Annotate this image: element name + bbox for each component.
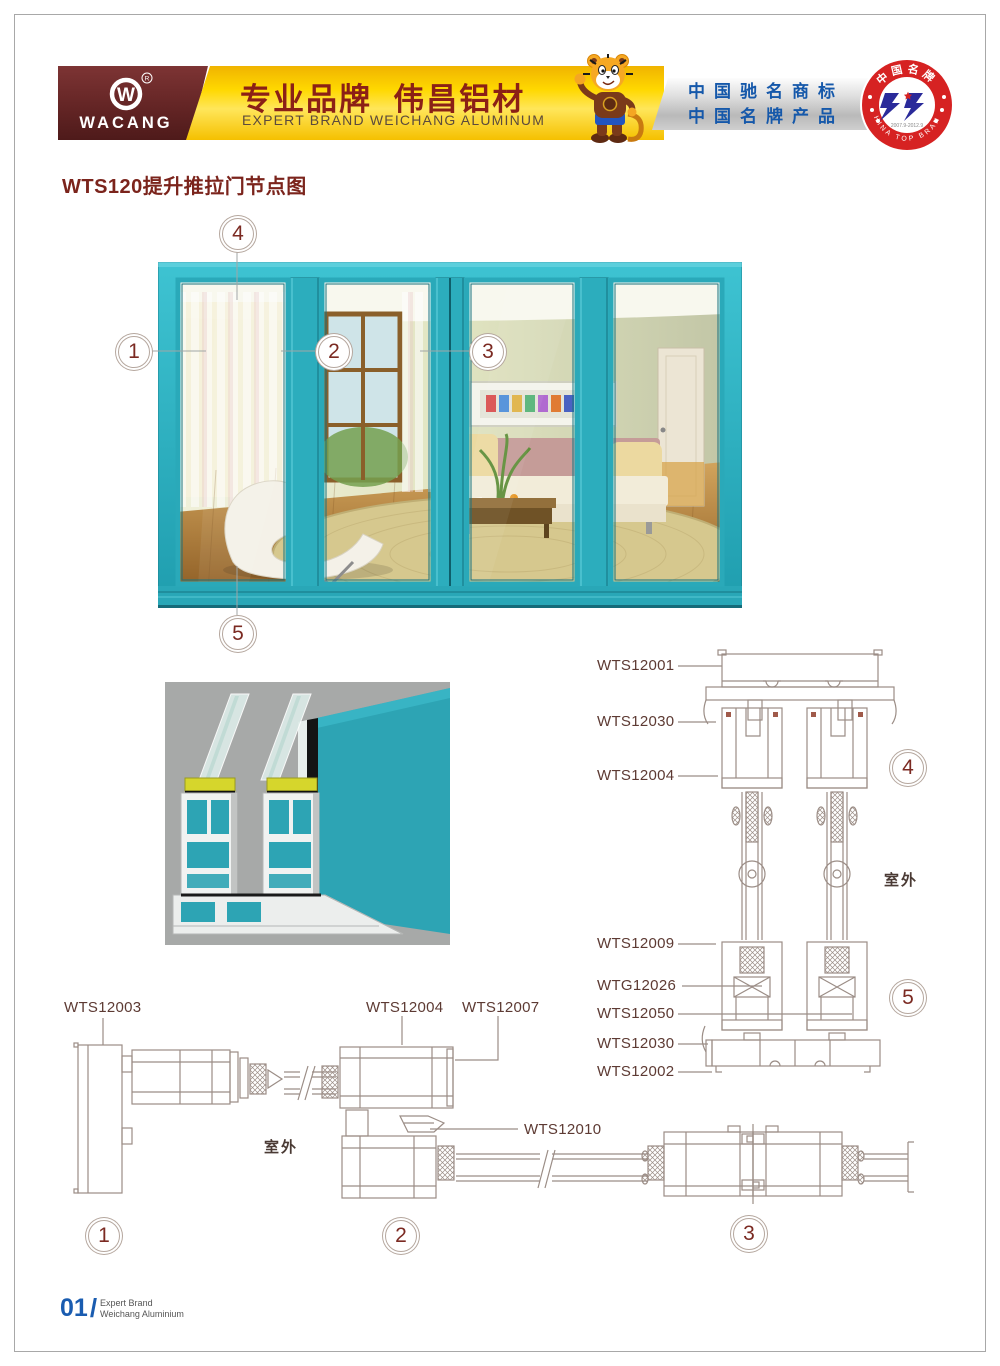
- door-callout-4: 4: [222, 218, 254, 250]
- door-callout-3: 3: [472, 336, 504, 368]
- section-callout-1: 1: [88, 1220, 120, 1252]
- outdoor-label-horizontal: 室外: [264, 1136, 298, 1157]
- part-label-wtg12026: WTG12026: [597, 977, 676, 994]
- part-label-wts12004-h: WTS12004: [366, 999, 443, 1016]
- door-callout-1: 1: [118, 336, 150, 368]
- door-callout-lines: [152, 251, 469, 615]
- part-label-wts12030-bottom: WTS12030: [597, 1035, 674, 1052]
- tiger-mascot-icon: [570, 52, 646, 144]
- door-callout-5: 5: [222, 618, 254, 650]
- horizontal-section-drawing: [74, 1016, 914, 1204]
- page-number: 01: [60, 1296, 88, 1321]
- section-callout-3: 3: [733, 1218, 765, 1250]
- badge-years: 2007.9-2012.9: [891, 123, 923, 129]
- catalog-page: W R WACANG 专业品牌 伟昌铝材 EXPERT BRAND WEICHA…: [0, 0, 1000, 1366]
- outdoor-label-vertical: 室外: [884, 869, 918, 890]
- footer-text: Expert Brand Weichang Aluminium: [100, 1298, 184, 1320]
- section-drawings: [0, 0, 1000, 1366]
- section-callout-5: 5: [892, 982, 924, 1014]
- part-label-wts12001: WTS12001: [597, 657, 674, 674]
- part-label-wts12003: WTS12003: [64, 999, 141, 1016]
- door-callout-2: 2: [318, 336, 350, 368]
- page-footer: 01 / Expert Brand Weichang Aluminium: [60, 1296, 184, 1321]
- section-callout-4: 4: [892, 752, 924, 784]
- part-label-wts12030-top: WTS12030: [597, 713, 674, 730]
- part-label-wts12004-v: WTS12004: [597, 767, 674, 784]
- china-top-brand-badge: 中国名牌 CHINA TOP BRAND 2007.9-2012.9: [858, 56, 956, 154]
- part-label-wts12009: WTS12009: [597, 935, 674, 952]
- part-label-wts12007: WTS12007: [462, 999, 539, 1016]
- part-label-wts12002: WTS12002: [597, 1063, 674, 1080]
- section-callout-2: 2: [385, 1220, 417, 1252]
- footer-slash: /: [90, 1296, 97, 1321]
- part-label-wts12010: WTS12010: [524, 1121, 601, 1138]
- footer-line-2: Weichang Aluminium: [100, 1309, 184, 1319]
- vertical-section-drawing: [678, 650, 896, 1072]
- part-label-wts12050: WTS12050: [597, 1005, 674, 1022]
- footer-line-1: Expert Brand: [100, 1298, 153, 1308]
